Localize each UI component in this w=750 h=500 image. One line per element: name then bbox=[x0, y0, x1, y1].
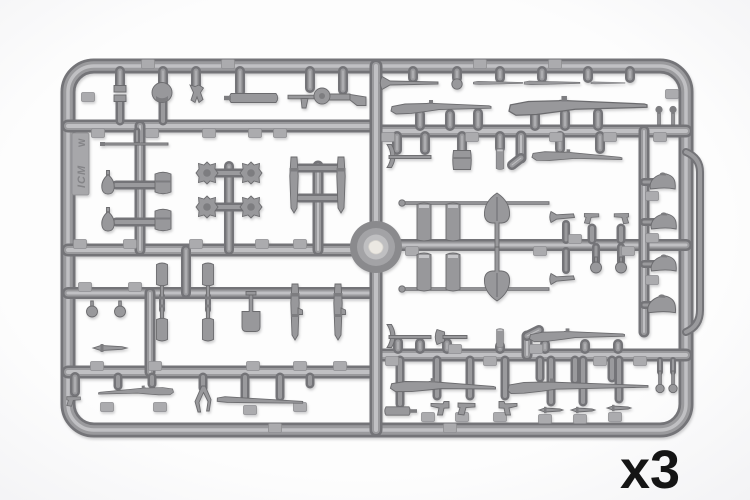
runner-tag bbox=[646, 276, 659, 285]
part-pouch_round bbox=[152, 83, 172, 103]
part-rifle_thin bbox=[524, 81, 580, 85]
part-rifle bbox=[532, 147, 623, 164]
runner-tag bbox=[646, 192, 659, 201]
runner-tag bbox=[474, 60, 487, 69]
part-knife bbox=[607, 405, 631, 411]
part-wishbone bbox=[195, 386, 211, 412]
part-pouch_cyl bbox=[155, 209, 171, 231]
sprue-photo: W ICM bbox=[0, 0, 750, 500]
part-cylinder_v bbox=[417, 203, 431, 241]
sprue-assembly: W ICM bbox=[67, 60, 700, 433]
part-shovel_up bbox=[484, 193, 509, 247]
runner-tag bbox=[190, 240, 203, 249]
part-flare bbox=[669, 106, 676, 125]
part-helmet bbox=[651, 212, 676, 229]
part-helmet bbox=[648, 294, 676, 312]
runner-tag bbox=[604, 133, 617, 142]
part-knife bbox=[539, 407, 563, 413]
part-blade_down bbox=[290, 157, 299, 213]
runner-tag bbox=[154, 403, 167, 412]
runner-tag bbox=[622, 247, 635, 256]
runner-tag bbox=[222, 60, 235, 69]
part-flare bbox=[655, 106, 662, 125]
runner-tag bbox=[654, 133, 667, 142]
runner-tag bbox=[422, 413, 435, 422]
runner-tag bbox=[386, 357, 399, 366]
runner-tag bbox=[82, 93, 95, 102]
logo-brand-text: ICM bbox=[76, 165, 88, 188]
part-shovel_up bbox=[484, 247, 509, 301]
part-rifle_thin bbox=[473, 81, 523, 84]
part-pouch_cyl bbox=[155, 172, 171, 194]
runner-tag bbox=[494, 413, 507, 422]
runner-tag bbox=[466, 133, 479, 142]
runner-tag bbox=[244, 406, 257, 415]
runner-tag bbox=[294, 362, 307, 371]
runner-tag bbox=[634, 357, 647, 366]
part-bayonet bbox=[93, 344, 127, 352]
runner-tag bbox=[247, 362, 260, 371]
part-pistol bbox=[614, 213, 628, 223]
runner-tag bbox=[203, 129, 216, 138]
part-mg bbox=[288, 88, 366, 108]
runner-tag bbox=[574, 415, 587, 424]
runner-tag bbox=[101, 403, 114, 412]
part-cylinder_v bbox=[446, 253, 460, 291]
part-rifle bbox=[390, 377, 495, 395]
runner-tag bbox=[124, 240, 137, 249]
runner-tag bbox=[382, 133, 395, 142]
part-rifle_thin bbox=[591, 82, 625, 84]
part-cylinder_v bbox=[446, 203, 460, 241]
runner-tag bbox=[569, 235, 582, 244]
part-grenade_egg bbox=[102, 208, 114, 232]
runner-tag bbox=[550, 133, 563, 142]
icm-logo-tag: W ICM bbox=[72, 133, 89, 195]
part-knob bbox=[452, 79, 462, 89]
part-rifle bbox=[509, 96, 647, 115]
runner-tag bbox=[449, 345, 462, 354]
hub-gate-blob bbox=[369, 241, 383, 255]
runner-tag bbox=[549, 60, 562, 69]
runner-tag bbox=[534, 247, 547, 256]
part-blade_down bbox=[337, 157, 346, 213]
part-cog bbox=[196, 162, 218, 184]
runner-tag bbox=[594, 357, 607, 366]
logo-mark-text: W bbox=[77, 138, 87, 147]
runner-tag bbox=[406, 247, 419, 256]
part-cog bbox=[240, 162, 262, 184]
runner-tag bbox=[249, 129, 262, 138]
runner-tag bbox=[609, 413, 622, 422]
runner-tag bbox=[666, 90, 679, 99]
part-suppressor bbox=[385, 407, 417, 415]
part-ball bbox=[87, 301, 98, 317]
runner-tag bbox=[444, 424, 457, 433]
part-horn bbox=[550, 274, 575, 285]
quantity-label: x3 bbox=[620, 443, 680, 497]
part-canteen bbox=[157, 305, 168, 342]
part-knife bbox=[571, 407, 595, 413]
runner-tag bbox=[256, 240, 269, 249]
runner-tag bbox=[274, 129, 287, 138]
part-ball bbox=[115, 301, 126, 317]
part-rifle_thin bbox=[217, 396, 303, 405]
runner-tag bbox=[142, 60, 155, 69]
part-rifle bbox=[98, 384, 173, 398]
runner-tag bbox=[294, 240, 307, 249]
part-canteen bbox=[203, 305, 214, 342]
runner-tag bbox=[146, 129, 159, 138]
part-helmet bbox=[650, 172, 675, 189]
runner-tag bbox=[129, 283, 142, 292]
runner-tag bbox=[334, 362, 347, 371]
part-thin_rod bbox=[100, 142, 168, 146]
part-cylinder_v bbox=[496, 149, 504, 170]
part-tpart bbox=[656, 371, 664, 393]
runner-tag bbox=[646, 234, 659, 243]
runner-tag bbox=[74, 240, 87, 249]
part-box bbox=[453, 151, 472, 170]
runner-tag bbox=[484, 357, 497, 366]
runner-tag bbox=[92, 129, 105, 138]
runner-tag bbox=[539, 415, 552, 424]
part-helmet bbox=[651, 254, 676, 271]
part-cylinder_v bbox=[497, 329, 504, 348]
part-clip bbox=[114, 86, 126, 102]
part-grenade_egg bbox=[102, 171, 114, 195]
part-cylinder_v bbox=[417, 253, 431, 291]
part-horn bbox=[550, 212, 575, 223]
part-tpart bbox=[669, 371, 677, 393]
photo-background: W ICM x3 bbox=[0, 0, 750, 500]
part-cog bbox=[240, 196, 262, 218]
part-cog bbox=[196, 196, 218, 218]
mold-injection-hub bbox=[350, 221, 402, 273]
runner-tag bbox=[79, 283, 92, 292]
part-pistol bbox=[584, 213, 598, 223]
part-small_equipment bbox=[190, 85, 204, 103]
runner-tag bbox=[530, 345, 543, 354]
part-cylinder_h bbox=[224, 94, 278, 103]
runner-tag bbox=[294, 403, 307, 412]
runner-tag bbox=[269, 424, 282, 433]
runner-tag bbox=[149, 362, 162, 371]
runner-tag bbox=[91, 362, 104, 371]
